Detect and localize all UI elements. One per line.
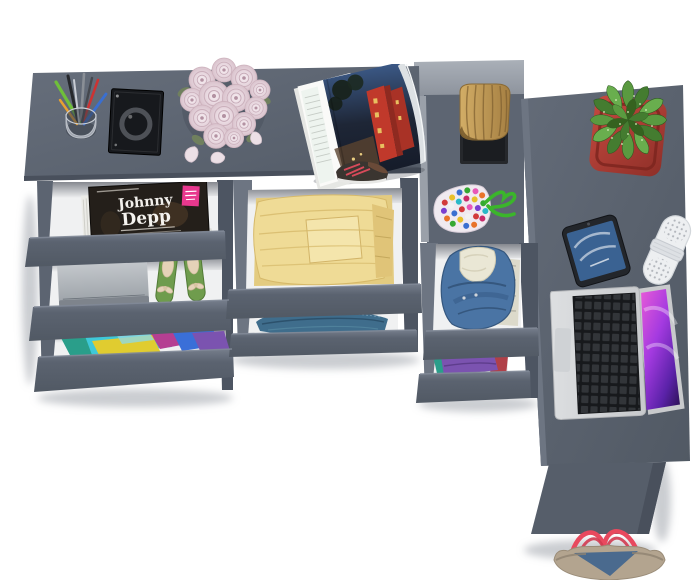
candy-pouch xyxy=(424,176,524,248)
laptop-trackpad xyxy=(554,328,572,372)
wooden-log xyxy=(448,82,520,170)
small-drawer-front-2 xyxy=(416,371,531,403)
pen-cup xyxy=(48,72,112,144)
open-laptop xyxy=(544,280,696,424)
smartphone xyxy=(556,212,636,288)
potted-plant xyxy=(576,66,680,196)
small-drawer-front-1 xyxy=(423,328,539,360)
scene: Johnny Depp xyxy=(0,0,700,580)
black-portfolio xyxy=(104,84,174,162)
tote-bag xyxy=(540,516,680,580)
rose-petals xyxy=(178,128,278,172)
sneaker xyxy=(330,156,392,186)
